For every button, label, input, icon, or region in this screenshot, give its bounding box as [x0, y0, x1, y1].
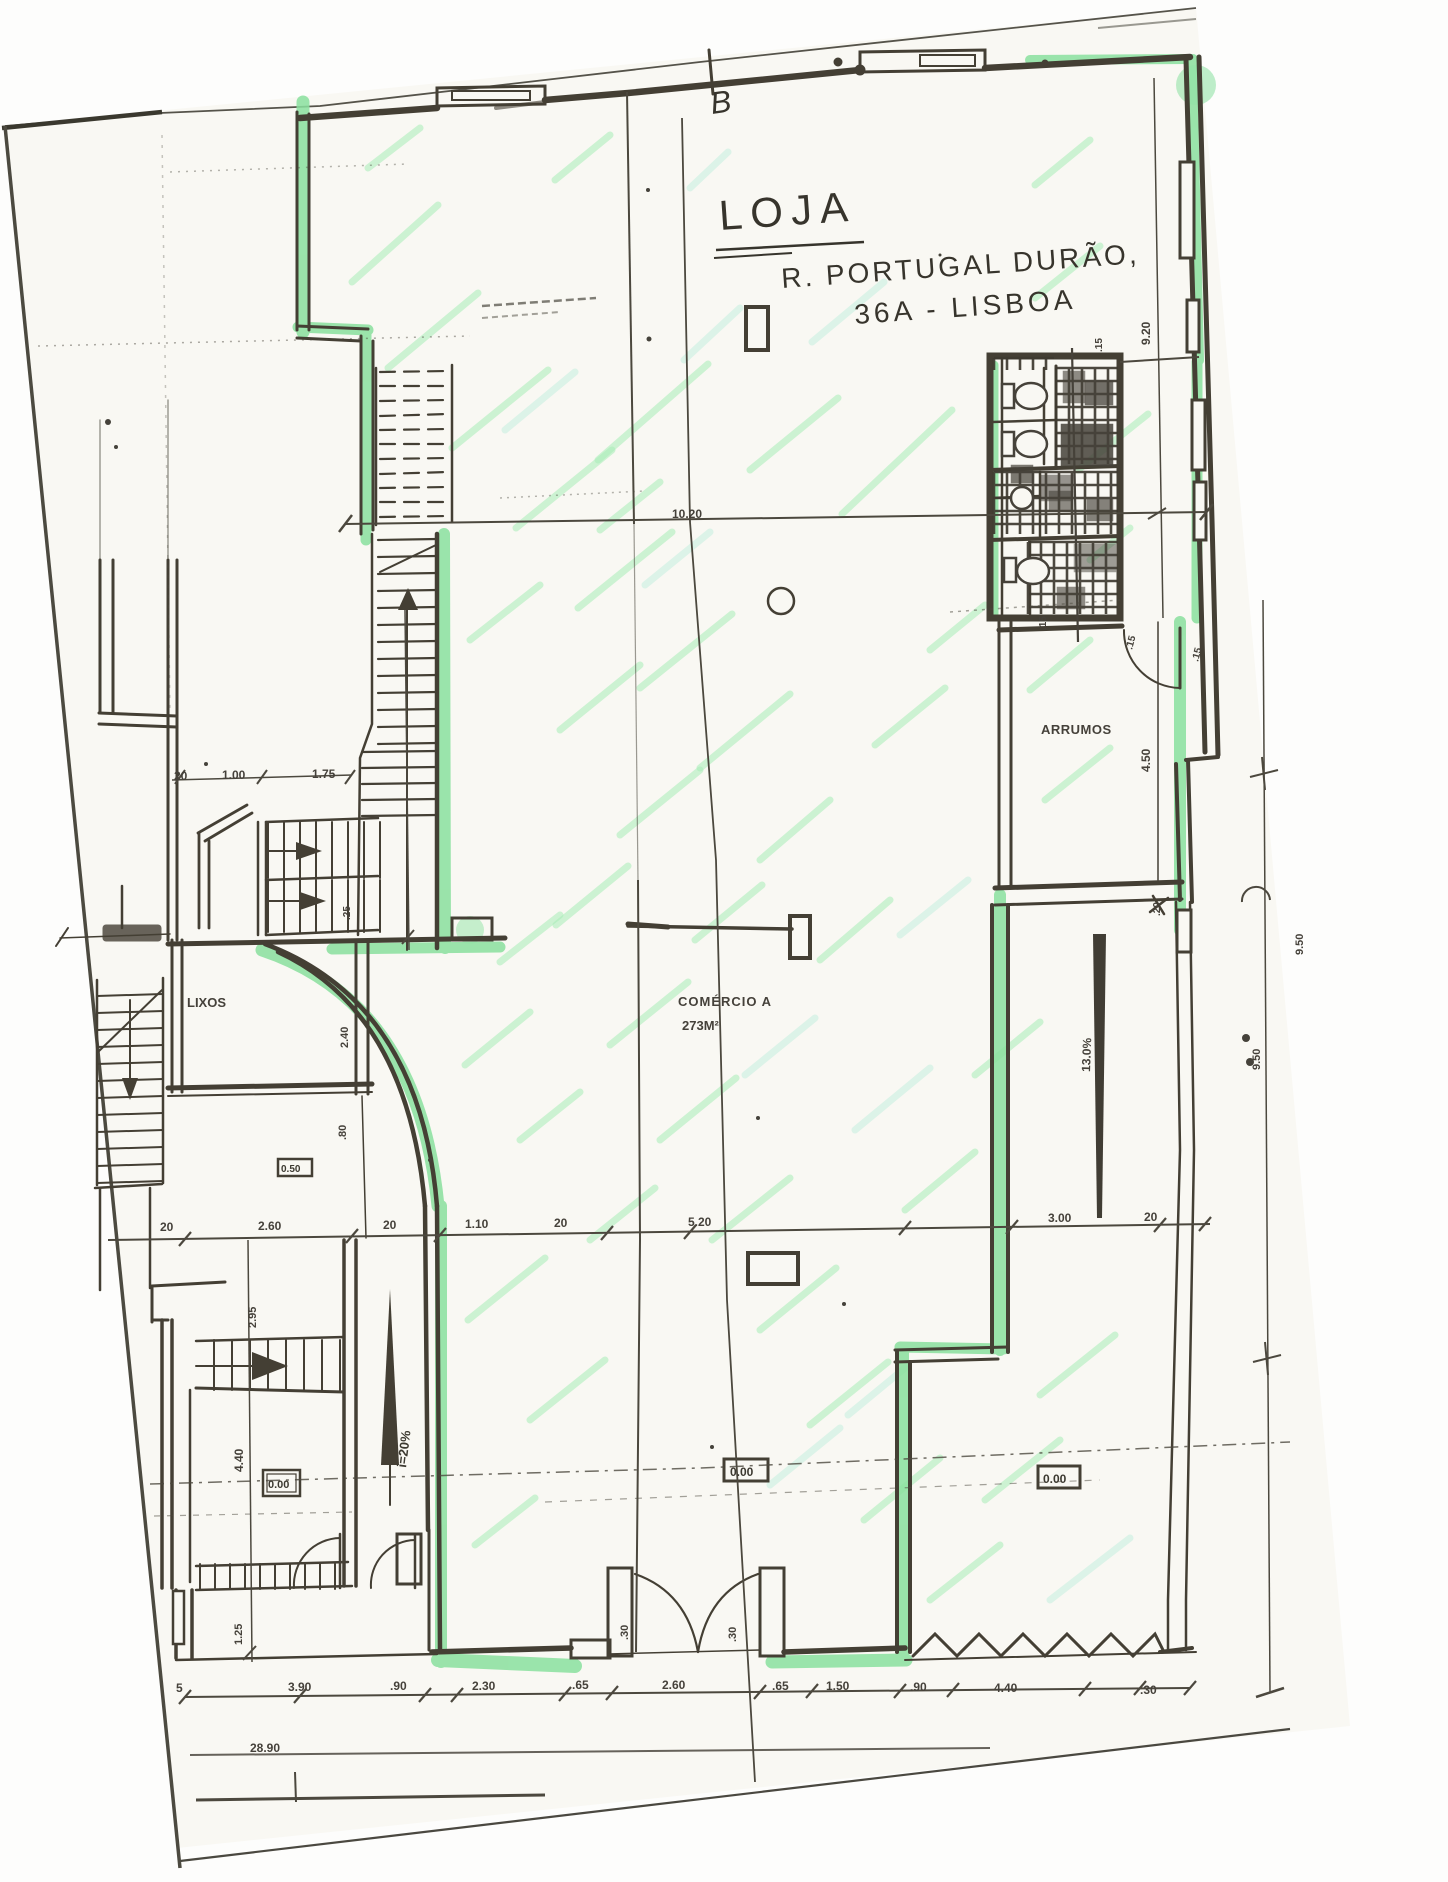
svg-text:20: 20 [554, 1216, 568, 1230]
svg-text:2.40: 2.40 [339, 1027, 351, 1048]
svg-text:.90: .90 [910, 1680, 927, 1694]
svg-text:20: 20 [174, 769, 188, 783]
svg-text:3.00: 3.00 [1048, 1211, 1072, 1225]
svg-text:20: 20 [160, 1220, 174, 1234]
svg-text:2.30: 2.30 [472, 1679, 496, 1693]
svg-text:.30: .30 [1140, 1683, 1157, 1697]
svg-text:3.90: 3.90 [288, 1680, 312, 1694]
svg-text:1.00: 1.00 [222, 768, 246, 782]
svg-text:13.0%: 13.0% [1079, 1037, 1094, 1072]
svg-text:1.25: 1.25 [233, 1624, 245, 1645]
svg-text:0.00: 0.00 [268, 1479, 289, 1491]
svg-text:4.50: 4.50 [1139, 748, 1153, 772]
svg-text:4.40: 4.40 [232, 1448, 246, 1472]
svg-text:.80: .80 [337, 1125, 349, 1140]
svg-text:4.40: 4.40 [994, 1681, 1018, 1695]
svg-text:0.00: 0.00 [730, 1465, 754, 1479]
svg-text:9.20: 9.20 [1139, 321, 1153, 345]
svg-text:.65: .65 [772, 1679, 789, 1693]
svg-text:.15: .15 [1094, 338, 1105, 352]
svg-text:20: 20 [383, 1218, 397, 1232]
svg-text:1.75: 1.75 [312, 767, 336, 781]
svg-text:.30: .30 [727, 1627, 739, 1642]
svg-text:ARRUMOS: ARRUMOS [1041, 722, 1112, 737]
svg-text:1.50: 1.50 [826, 1679, 850, 1693]
svg-text:9.50: 9.50 [1294, 934, 1306, 955]
svg-text:2.60: 2.60 [258, 1219, 282, 1233]
svg-text:2.60: 2.60 [662, 1678, 686, 1692]
svg-text:0.50: 0.50 [281, 1164, 301, 1175]
svg-text:1.10: 1.10 [465, 1217, 489, 1231]
svg-text:5: 5 [176, 1681, 183, 1695]
svg-text:.15: .15 [1038, 616, 1049, 630]
svg-text:273M²: 273M² [682, 1018, 720, 1033]
svg-text:0.00: 0.00 [1043, 1472, 1067, 1486]
svg-text:20: 20 [1144, 1210, 1158, 1224]
svg-text:2.95: 2.95 [247, 1307, 259, 1328]
svg-text:LOJA: LOJA [717, 183, 857, 239]
svg-text:.90: .90 [390, 1679, 407, 1693]
svg-text:.25: .25 [342, 906, 353, 920]
svg-text:LIXOS: LIXOS [187, 995, 226, 1010]
svg-text:10.20: 10.20 [672, 507, 702, 521]
svg-text:.30: .30 [619, 1625, 631, 1640]
svg-text:28.90: 28.90 [250, 1741, 280, 1755]
svg-text:COMÉRCIO A: COMÉRCIO A [678, 994, 772, 1009]
svg-text:5.20: 5.20 [688, 1215, 712, 1229]
svg-text:.65: .65 [572, 1678, 589, 1692]
svg-text:.20: .20 [1152, 902, 1163, 916]
